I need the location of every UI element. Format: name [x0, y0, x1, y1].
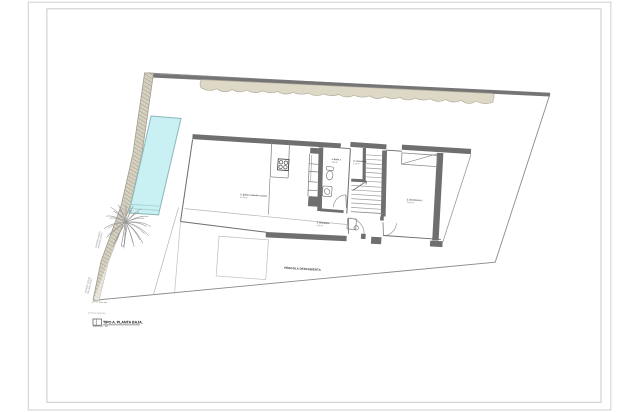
svg-text:2.10 m²: 2.10 m²	[353, 162, 360, 165]
svg-text:ACCESO RODADO: ACCESO RODADO	[88, 312, 106, 316]
svg-text:3.90 m²: 3.90 m²	[331, 161, 338, 164]
svg-text:26.10 m²: 26.10 m²	[240, 196, 248, 199]
svg-text:12.80 m²: 12.80 m²	[406, 201, 414, 204]
svg-text:4.20 m²: 4.20 m²	[316, 224, 323, 227]
svg-text:ESCALA 1 : 50: ESCALA 1 : 50	[93, 325, 108, 328]
svg-text:TIPO A. PLANTA BAJA.: TIPO A. PLANTA BAJA.	[103, 321, 143, 325]
